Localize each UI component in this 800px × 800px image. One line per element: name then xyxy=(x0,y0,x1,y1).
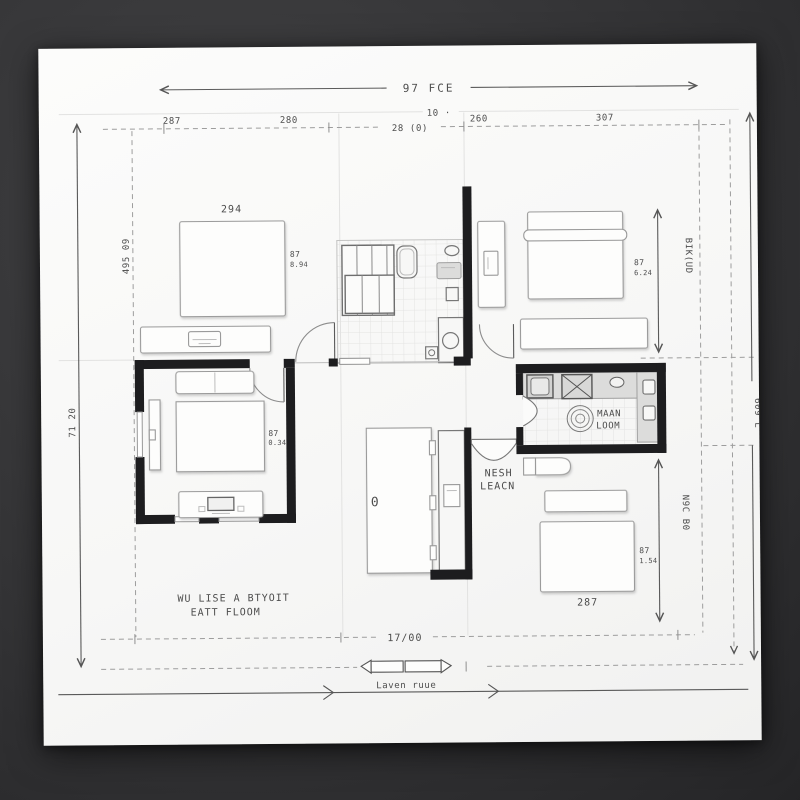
seg-287: 287 xyxy=(163,117,181,127)
table-mark: 0 xyxy=(371,495,379,510)
bed-tl-label: 294 xyxy=(221,204,242,215)
left-dimensions: 71 20 495 09 xyxy=(66,124,136,667)
top-dimension: 97 FCE 10 · xyxy=(161,80,697,121)
scale-label: Laven ruue xyxy=(376,681,436,691)
cabinet-icon xyxy=(149,400,161,470)
bathroom-door-arc xyxy=(295,323,334,362)
sofa-icon xyxy=(176,371,254,394)
window-icon xyxy=(137,412,142,457)
bed-tl-side-label: 87 xyxy=(290,250,301,259)
hall-door: NESH LEACN xyxy=(471,439,516,492)
note-line-2: EATT FLOOM xyxy=(191,607,261,619)
br-side-sub: 1.54 xyxy=(639,557,657,565)
note-line-1: WU LISE A BTYOIT xyxy=(177,593,289,605)
bedroom-top-left: 294 87 8.94 xyxy=(140,204,309,353)
tr-side-sub: 6.24 xyxy=(634,269,652,277)
wardrobe-icon xyxy=(478,221,506,307)
right-dimensions: BIK(UD 609 L N9C B0 xyxy=(677,113,762,660)
shelf-icon xyxy=(446,288,458,301)
hall-shelf-icon xyxy=(340,358,370,364)
scale-bar: Laven ruue xyxy=(361,660,451,692)
bed-icon xyxy=(180,221,286,317)
seg-280: 280 xyxy=(280,116,298,126)
bedroom-tr-door-arc xyxy=(479,324,513,358)
dresser-icon xyxy=(520,318,647,349)
tv-console-icon xyxy=(179,491,263,518)
bed-icon xyxy=(540,521,635,592)
vanity-sink-icon xyxy=(438,317,463,362)
hall-label-1: NESH xyxy=(485,468,513,479)
bed-icon xyxy=(524,211,628,299)
desk-background: 97 FCE 10 · 287 280 28 (0) 260 307 71 xyxy=(0,0,800,800)
sink-icon xyxy=(527,375,553,398)
tr-side-label: 87 xyxy=(634,258,645,267)
chair-icon xyxy=(430,496,436,510)
chaise-icon xyxy=(524,458,571,475)
washer-icon xyxy=(426,347,438,359)
shower-icon xyxy=(342,245,395,315)
right-top-dim: BIK(UD xyxy=(683,238,693,274)
kitchen: MAAN LOOM xyxy=(516,363,667,454)
hall-label-2: LEACN xyxy=(480,481,515,492)
plan-note: WU LISE A BTYOIT EATT FLOOM xyxy=(177,593,290,619)
basin-icon xyxy=(610,377,624,387)
br-bed-label: 287 xyxy=(577,597,598,608)
seg-307: 307 xyxy=(596,113,614,123)
bedroom-top-right: 87 6.24 xyxy=(462,185,658,359)
seg-260: 260 xyxy=(470,114,488,124)
offset-label: 10 · xyxy=(427,109,451,119)
dresser-icon xyxy=(140,326,270,353)
floor-plan-drawing: 97 FCE 10 · 287 280 28 (0) 260 307 71 xyxy=(38,43,761,746)
kitchen-label-2: LOOM xyxy=(596,421,620,431)
door-leaf-icon xyxy=(471,439,516,460)
living-side-sub: 0.34 xyxy=(268,439,286,447)
bottom-width-label: 17/00 xyxy=(387,633,422,644)
right-outer-dim: 609 L xyxy=(752,398,762,428)
bathtub-icon xyxy=(397,246,417,278)
living-door-arc xyxy=(250,368,284,402)
blueprint-paper: 97 FCE 10 · 287 280 28 (0) 260 307 71 xyxy=(38,43,761,746)
chair-icon xyxy=(429,441,435,455)
living-room: 87 0.34 xyxy=(135,359,296,524)
overall-width-label: 97 FCE xyxy=(403,82,455,95)
seg-2810: 28 (0) xyxy=(392,124,428,134)
counter-icon xyxy=(438,430,465,571)
bedroom-bottom-right: 287 87 1.54 xyxy=(524,457,660,622)
top-dimension-segments: 287 280 28 (0) 260 307 xyxy=(103,112,727,136)
stove-icon xyxy=(562,374,592,398)
right-bottom-dim: N9C B0 xyxy=(680,495,690,531)
br-side-label: 87 xyxy=(639,546,650,555)
bathroom xyxy=(295,240,464,364)
bed-tl-side-sub: 8.94 xyxy=(290,261,308,269)
dresser-icon xyxy=(545,490,627,512)
dining-area: 0 xyxy=(366,427,472,580)
kitchen-label-1: MAAN xyxy=(597,409,621,419)
left-inner-dim: 495 09 xyxy=(122,238,132,274)
left-outer-dim: 71 20 xyxy=(68,407,78,437)
rug-icon xyxy=(176,401,265,472)
living-side-label: 87 xyxy=(268,429,279,438)
chair-icon xyxy=(430,546,436,560)
room-dimension-arrow xyxy=(659,460,660,621)
